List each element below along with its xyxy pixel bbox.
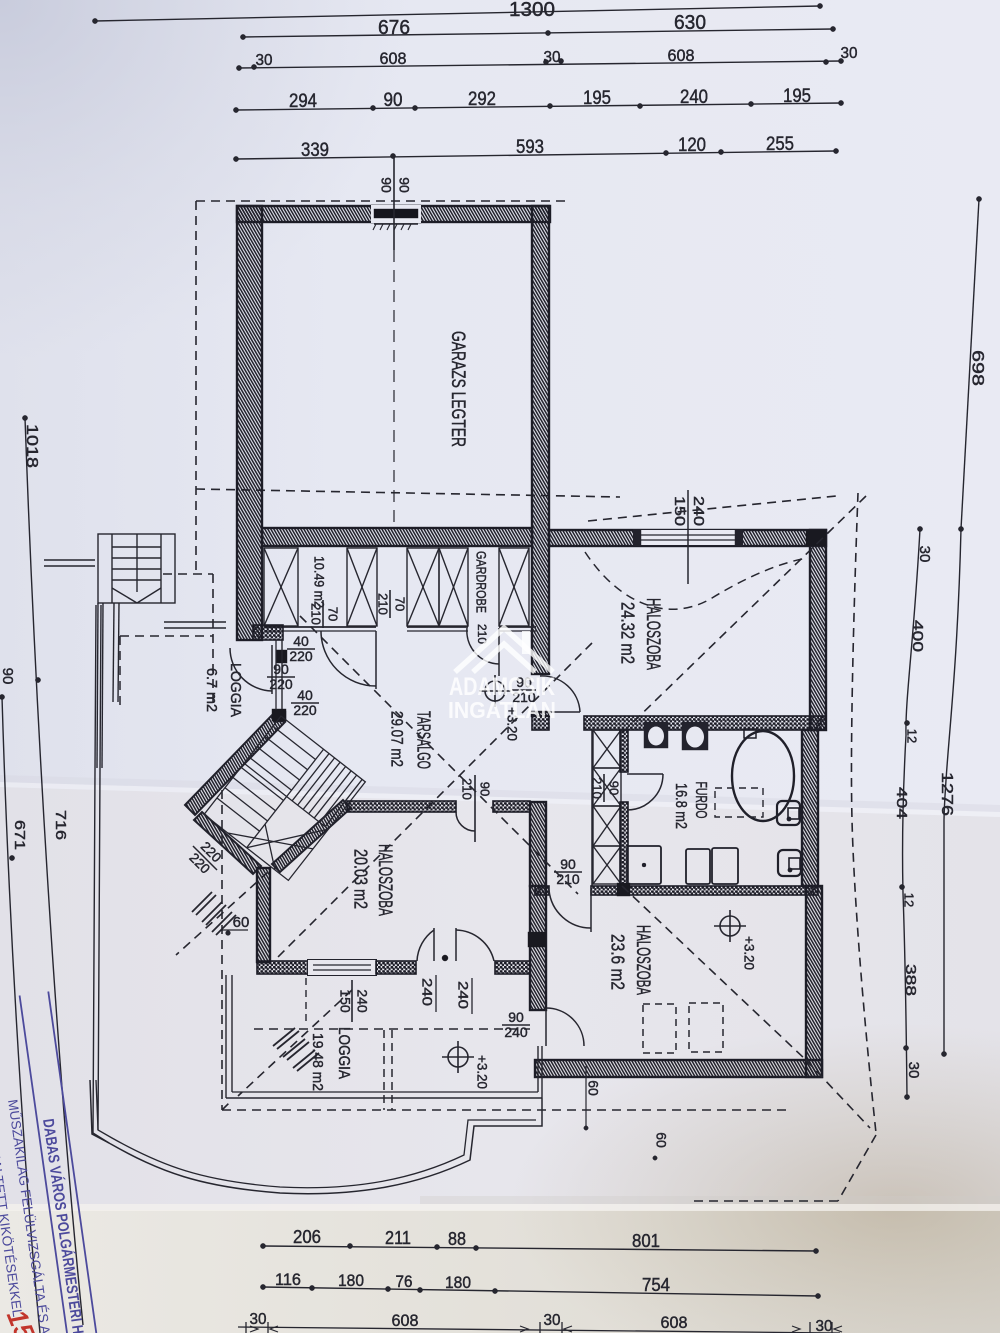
svg-text:90: 90 <box>378 177 394 193</box>
svg-text:90: 90 <box>508 1009 524 1025</box>
svg-text:698: 698 <box>969 350 988 386</box>
svg-text:90: 90 <box>478 782 493 796</box>
svg-text:210: 210 <box>590 777 605 799</box>
svg-text:HALOSZOBA: HALOSZOBA <box>632 925 653 995</box>
svg-text:294: 294 <box>289 91 317 112</box>
svg-text:240: 240 <box>455 981 471 1009</box>
svg-text:+3.20: +3.20 <box>474 1055 490 1089</box>
svg-text:292: 292 <box>468 89 496 110</box>
svg-text:220: 220 <box>269 676 293 692</box>
svg-text:206: 206 <box>293 1227 321 1247</box>
svg-text:16.8 m2: 16.8 m2 <box>672 783 689 829</box>
svg-text:210: 210 <box>309 603 324 625</box>
svg-text:754: 754 <box>642 1275 670 1295</box>
svg-text:GARDROBE: GARDROBE <box>473 551 488 613</box>
svg-text:70: 70 <box>326 607 341 621</box>
svg-text:HALOSZOBA: HALOSZOBA <box>374 844 395 916</box>
svg-text:801: 801 <box>632 1231 660 1251</box>
svg-text:LOGGIA: LOGGIA <box>227 663 244 717</box>
svg-text:23.6 m2: 23.6 m2 <box>607 934 627 990</box>
svg-text:716: 716 <box>52 810 69 840</box>
svg-text:90: 90 <box>560 856 576 872</box>
svg-text:240: 240 <box>354 989 370 1013</box>
svg-text:30: 30 <box>544 49 561 66</box>
svg-text:388: 388 <box>902 964 919 996</box>
svg-text:400: 400 <box>909 620 926 652</box>
svg-text:90: 90 <box>0 668 16 685</box>
svg-text:116: 116 <box>275 1270 301 1289</box>
svg-text:90: 90 <box>396 177 412 193</box>
svg-text:339: 339 <box>301 140 329 161</box>
svg-text:210: 210 <box>376 593 391 615</box>
svg-text:240: 240 <box>504 1024 528 1040</box>
svg-text:404: 404 <box>893 787 910 819</box>
svg-text:220: 220 <box>289 648 313 664</box>
svg-text:30: 30 <box>905 1062 922 1079</box>
svg-text:180: 180 <box>338 1271 364 1290</box>
svg-text:90: 90 <box>384 90 403 111</box>
svg-text:240: 240 <box>690 496 707 526</box>
svg-text:12: 12 <box>902 893 917 907</box>
svg-text:608: 608 <box>392 1311 419 1330</box>
svg-text:1300: 1300 <box>509 0 555 21</box>
svg-text:150: 150 <box>671 496 688 526</box>
svg-text:FURDO: FURDO <box>692 782 709 819</box>
svg-text:671: 671 <box>11 820 28 850</box>
svg-text:88: 88 <box>448 1229 466 1249</box>
svg-text:195: 195 <box>783 86 811 107</box>
svg-text:120: 120 <box>678 135 706 156</box>
svg-text:60: 60 <box>585 1080 601 1096</box>
svg-text:90: 90 <box>607 781 622 795</box>
svg-text:30: 30 <box>916 546 933 563</box>
svg-text:195: 195 <box>583 88 611 109</box>
svg-text:255: 255 <box>766 134 794 155</box>
svg-text:TARSALGO: TARSALGO <box>413 711 433 769</box>
svg-text:30: 30 <box>250 1311 267 1328</box>
svg-text:20.03 m2: 20.03 m2 <box>350 849 370 909</box>
svg-text:1276: 1276 <box>938 772 955 816</box>
svg-text:60: 60 <box>653 1132 669 1148</box>
svg-text:593: 593 <box>516 137 544 158</box>
svg-text:211: 211 <box>385 1228 411 1248</box>
svg-text:240: 240 <box>680 87 708 108</box>
svg-text:6.7 m2: 6.7 m2 <box>203 668 219 712</box>
svg-text:76: 76 <box>396 1272 413 1291</box>
svg-text:676: 676 <box>378 17 410 39</box>
svg-text:608: 608 <box>380 49 407 68</box>
svg-text:30: 30 <box>544 1312 561 1329</box>
svg-text:40: 40 <box>297 687 313 703</box>
svg-text:LOGGIA: LOGGIA <box>335 1027 352 1079</box>
svg-text:12: 12 <box>905 729 920 743</box>
svg-text:GARAZS LEGTER: GARAZS LEGTER <box>447 331 468 447</box>
svg-text:608: 608 <box>661 1313 688 1332</box>
svg-text:30: 30 <box>816 1318 833 1333</box>
svg-text:INGATLAN: INGATLAN <box>448 697 556 723</box>
svg-text:29.07 m2: 29.07 m2 <box>388 711 407 767</box>
svg-text:180: 180 <box>445 1273 471 1292</box>
svg-text:240: 240 <box>419 978 435 1006</box>
svg-text:30: 30 <box>841 45 858 62</box>
svg-text:630: 630 <box>674 12 706 34</box>
svg-text:70: 70 <box>393 597 408 611</box>
svg-text:30: 30 <box>256 52 273 69</box>
svg-text:1018: 1018 <box>23 424 40 468</box>
svg-text:10.49 m2: 10.49 m2 <box>311 556 327 608</box>
svg-text:24.32 m2: 24.32 m2 <box>617 602 637 664</box>
svg-text:+3.20: +3.20 <box>741 936 757 970</box>
svg-text:40: 40 <box>293 633 309 649</box>
svg-text:19.48 m2: 19.48 m2 <box>309 1033 326 1091</box>
svg-text:220: 220 <box>293 702 317 718</box>
svg-text:608: 608 <box>668 46 695 65</box>
